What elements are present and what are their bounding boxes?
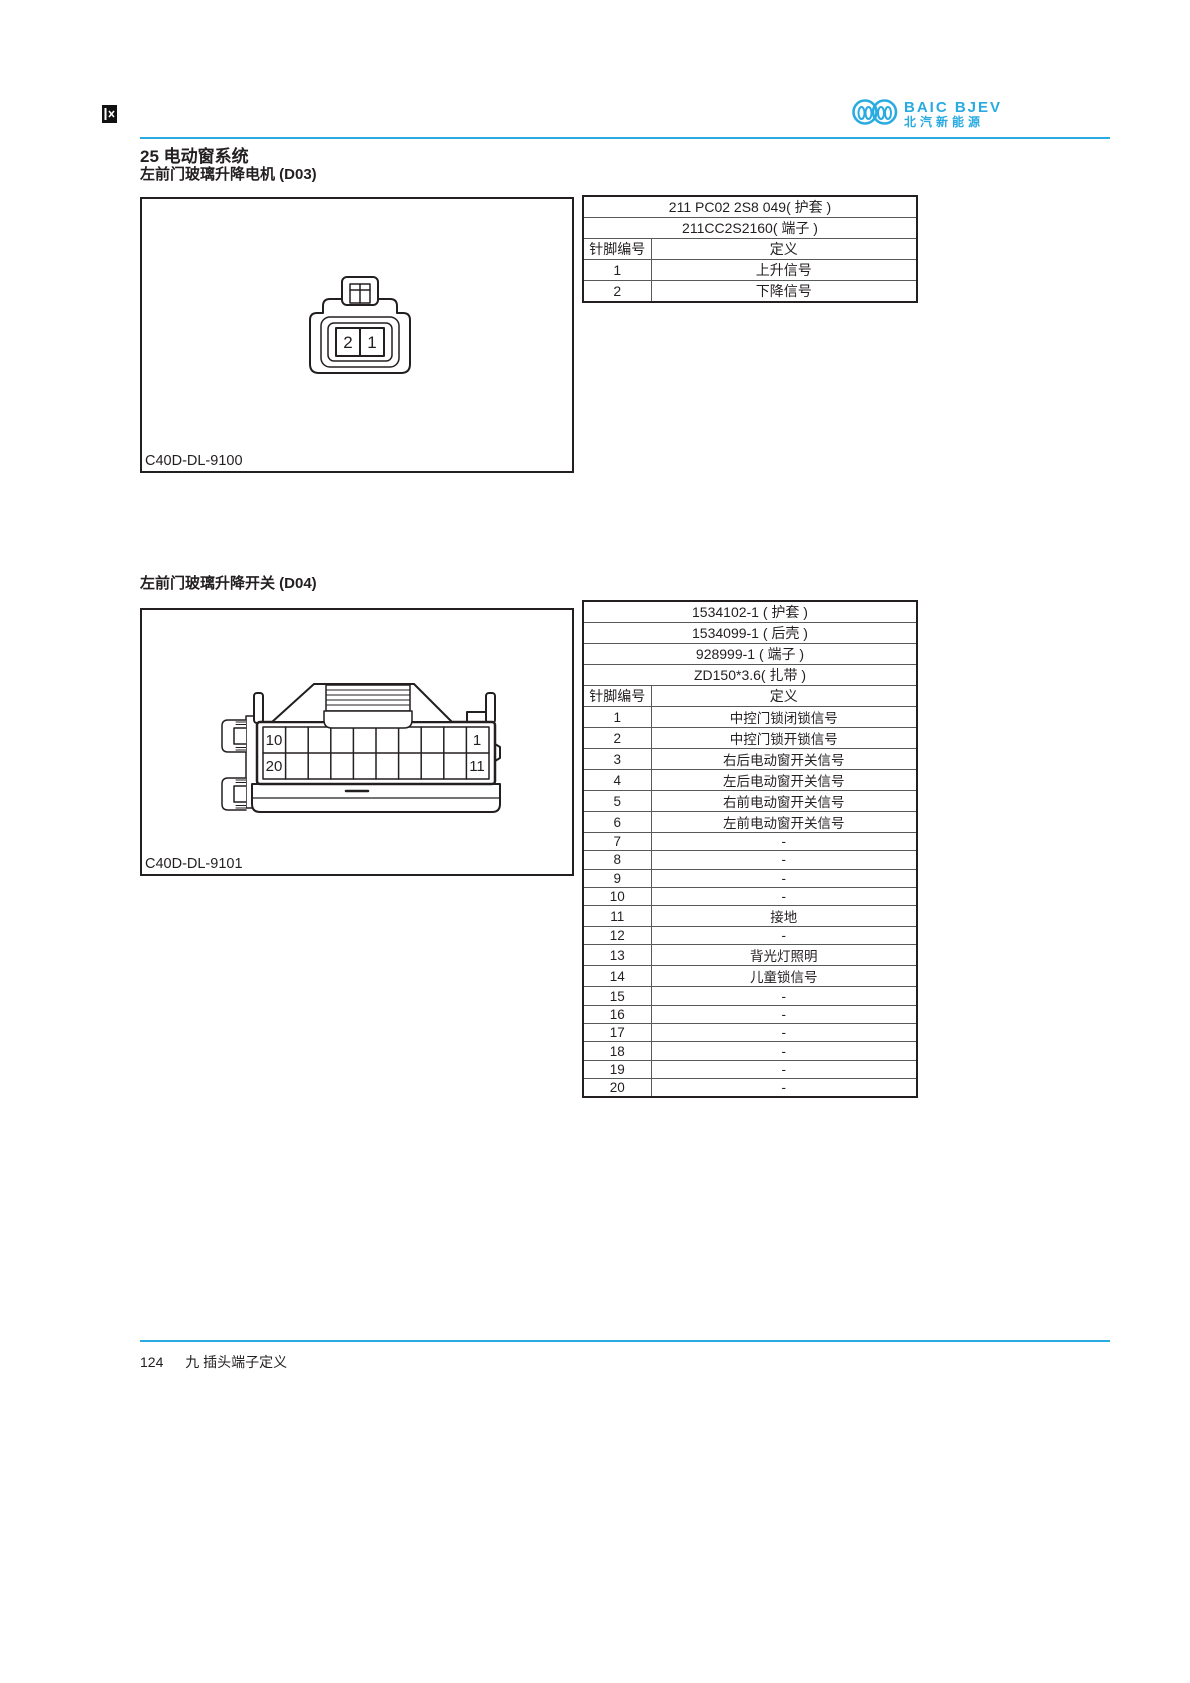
table-row: 1534102-1 ( 护套 ) bbox=[583, 601, 917, 623]
pin-number-cell: 3 bbox=[583, 749, 651, 770]
pin-definition-cell: - bbox=[651, 887, 917, 905]
table-row: 10 - bbox=[583, 887, 917, 905]
section-title-d03: 左前门玻璃升降电机 (D03) bbox=[140, 163, 317, 184]
pin-number-cell: 2 bbox=[583, 281, 651, 303]
part-number-cell: 211CC2S2160( 端子 ) bbox=[583, 218, 917, 239]
pin-label-1: 1 bbox=[367, 333, 376, 352]
pin-definition-cell: 右前电动窗开关信号 bbox=[651, 791, 917, 812]
table-row: 9 - bbox=[583, 869, 917, 887]
table-row: 2 中控门锁开锁信号 bbox=[583, 728, 917, 749]
page-footer: 124 九 插头端子定义 bbox=[140, 1352, 287, 1372]
figure-box-d04: 10 1 20 11 C40D-DL-9101 bbox=[140, 608, 574, 876]
part-number-cell: 928999-1 ( 端子 ) bbox=[583, 644, 917, 665]
pin-label-1: 1 bbox=[473, 732, 481, 749]
pin-header-cell: 针脚编号 bbox=[583, 686, 651, 707]
pin-number-cell: 1 bbox=[583, 707, 651, 728]
pin-definition-cell: - bbox=[651, 927, 917, 945]
table-row: ZD150*3.6( 扎带 ) bbox=[583, 665, 917, 686]
section-title-d04: 左前门玻璃升降开关 (D04) bbox=[140, 572, 317, 593]
pin-header-cell: 针脚编号 bbox=[583, 239, 651, 260]
pin-number-cell: 10 bbox=[583, 887, 651, 905]
brand-name-cn: 北汽新能源 bbox=[904, 116, 1002, 130]
pin-number-cell: 5 bbox=[583, 791, 651, 812]
part-number-cell: 1534099-1 ( 后壳 ) bbox=[583, 623, 917, 644]
pin-number-cell: 11 bbox=[583, 906, 651, 927]
table-row: 6 左前电动窗开关信号 bbox=[583, 812, 917, 833]
pin-number-cell: 14 bbox=[583, 966, 651, 987]
table-row: 14 儿童锁信号 bbox=[583, 966, 917, 987]
pin-definition-cell: - bbox=[651, 1024, 917, 1042]
pin-number-cell: 1 bbox=[583, 260, 651, 281]
pin-definition-cell: - bbox=[651, 1060, 917, 1078]
pin-definition-cell: - bbox=[651, 833, 917, 851]
def-header-cell: 定义 bbox=[651, 686, 917, 707]
table-row: 5 右前电动窗开关信号 bbox=[583, 791, 917, 812]
pin-number-cell: 6 bbox=[583, 812, 651, 833]
pin-number-cell: 20 bbox=[583, 1078, 651, 1096]
table-row: 211 PC02 2S8 049( 护套 ) bbox=[583, 196, 917, 218]
table-row: 2 下降信号 bbox=[583, 281, 917, 303]
pin-number-cell: 15 bbox=[583, 987, 651, 1005]
brand-name: BAIC BJEV bbox=[904, 99, 1002, 116]
table-row: 19 - bbox=[583, 1060, 917, 1078]
pin-number-cell: 18 bbox=[583, 1042, 651, 1060]
pin-definition-cell: 背光灯照明 bbox=[651, 945, 917, 966]
brand-logo-text: BAIC BJEV 北汽新能源 bbox=[904, 99, 1002, 130]
pin-definition-cell: - bbox=[651, 1005, 917, 1023]
table-row: 7 - bbox=[583, 833, 917, 851]
pin-definition-cell: - bbox=[651, 851, 917, 869]
table-row: 1 中控门锁闭锁信号 bbox=[583, 707, 917, 728]
pin-definition-cell: - bbox=[651, 987, 917, 1005]
chapter-title: 九 插头端子定义 bbox=[185, 1354, 287, 1370]
pin-number-cell: 7 bbox=[583, 833, 651, 851]
table-row: 1 上升信号 bbox=[583, 260, 917, 281]
pin-number-cell: 9 bbox=[583, 869, 651, 887]
connector-drawing-d04: 10 1 20 11 bbox=[210, 646, 502, 816]
figure-label-d03: C40D-DL-9100 bbox=[145, 453, 243, 469]
table-header-row: 针脚编号 定义 bbox=[583, 239, 917, 260]
pin-definition-cell: 右后电动窗开关信号 bbox=[651, 749, 917, 770]
footer-rule bbox=[140, 1340, 1110, 1342]
table-row: 15 - bbox=[583, 987, 917, 1005]
header-rule bbox=[140, 137, 1110, 139]
manual-page: BAIC BJEV 北汽新能源 25 电动窗系统 左前门玻璃升降电机 (D03) bbox=[0, 0, 1190, 1683]
pin-label-20: 20 bbox=[266, 758, 283, 775]
pin-label-2: 2 bbox=[343, 333, 352, 352]
pin-definition-cell: 儿童锁信号 bbox=[651, 966, 917, 987]
pin-definition-cell: 左后电动窗开关信号 bbox=[651, 770, 917, 791]
pin-label-11: 11 bbox=[469, 758, 485, 775]
table-row: 17 - bbox=[583, 1024, 917, 1042]
baic-logo-icon bbox=[852, 94, 898, 135]
connector-drawing-d03: 2 1 bbox=[302, 275, 418, 379]
part-number-cell: 1534102-1 ( 护套 ) bbox=[583, 601, 917, 623]
table-row: 3 右后电动窗开关信号 bbox=[583, 749, 917, 770]
table-row: 13 背光灯照明 bbox=[583, 945, 917, 966]
table-row: 8 - bbox=[583, 851, 917, 869]
table-row: 11 接地 bbox=[583, 906, 917, 927]
table-row: 12 - bbox=[583, 927, 917, 945]
pin-number-cell: 4 bbox=[583, 770, 651, 791]
pin-definition-cell: - bbox=[651, 1078, 917, 1096]
table-row: 928999-1 ( 端子 ) bbox=[583, 644, 917, 665]
pin-number-cell: 13 bbox=[583, 945, 651, 966]
figure-box-d03: 2 1 C40D-DL-9100 bbox=[140, 197, 574, 473]
pin-number-cell: 19 bbox=[583, 1060, 651, 1078]
figure-label-d04: C40D-DL-9101 bbox=[145, 856, 243, 872]
page-number: 124 bbox=[140, 1354, 163, 1370]
pin-definition-cell: 中控门锁开锁信号 bbox=[651, 728, 917, 749]
table-row: 4 左后电动窗开关信号 bbox=[583, 770, 917, 791]
pin-definition-cell: - bbox=[651, 1042, 917, 1060]
table-row: 18 - bbox=[583, 1042, 917, 1060]
pin-number-cell: 16 bbox=[583, 1005, 651, 1023]
pin-table-d04: 1534102-1 ( 护套 ) 1534099-1 ( 后壳 ) 928999… bbox=[582, 600, 918, 1098]
pin-label-10: 10 bbox=[266, 732, 283, 749]
pin-definition-cell: 中控门锁闭锁信号 bbox=[651, 707, 917, 728]
pin-number-cell: 8 bbox=[583, 851, 651, 869]
pin-definition-cell: 下降信号 bbox=[651, 281, 917, 303]
broken-image-icon bbox=[102, 105, 117, 123]
pin-definition-cell: 上升信号 bbox=[651, 260, 917, 281]
part-number-cell: ZD150*3.6( 扎带 ) bbox=[583, 665, 917, 686]
table-header-row: 针脚编号 定义 bbox=[583, 686, 917, 707]
pin-table-d03: 211 PC02 2S8 049( 护套 ) 211CC2S2160( 端子 )… bbox=[582, 195, 918, 303]
pin-number-cell: 17 bbox=[583, 1024, 651, 1042]
pin-number-cell: 2 bbox=[583, 728, 651, 749]
table-row: 1534099-1 ( 后壳 ) bbox=[583, 623, 917, 644]
pin-definition-cell: 左前电动窗开关信号 bbox=[651, 812, 917, 833]
table-row: 16 - bbox=[583, 1005, 917, 1023]
part-number-cell: 211 PC02 2S8 049( 护套 ) bbox=[583, 196, 917, 218]
table-row: 20 - bbox=[583, 1078, 917, 1096]
pin-definition-cell: 接地 bbox=[651, 906, 917, 927]
brand-logo: BAIC BJEV 北汽新能源 bbox=[852, 94, 1002, 135]
pin-number-cell: 12 bbox=[583, 927, 651, 945]
table-row: 211CC2S2160( 端子 ) bbox=[583, 218, 917, 239]
pin-definition-cell: - bbox=[651, 869, 917, 887]
def-header-cell: 定义 bbox=[651, 239, 917, 260]
